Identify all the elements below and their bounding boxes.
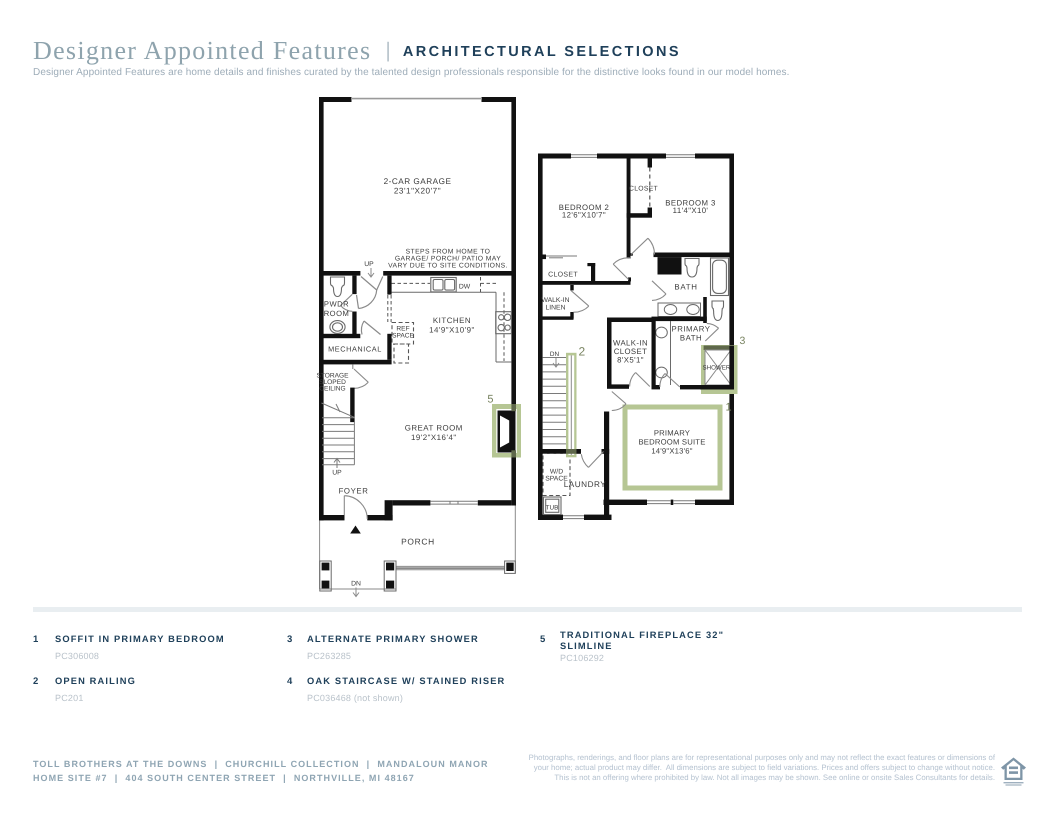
svg-text:CLOSET: CLOSET	[548, 272, 578, 279]
svg-text:19'2"X16'4": 19'2"X16'4"	[411, 433, 457, 442]
svg-text:BATH: BATH	[674, 283, 697, 292]
svg-text:PWDR: PWDR	[324, 300, 349, 309]
svg-text:DW: DW	[459, 283, 471, 290]
svg-text:23'1"X20'7": 23'1"X20'7"	[394, 187, 441, 196]
svg-text:BATH: BATH	[680, 334, 702, 343]
svg-text:14'9"X10'9": 14'9"X10'9"	[429, 326, 475, 335]
svg-text:FOYER: FOYER	[339, 487, 369, 496]
svg-text:BEDROOM SUITE: BEDROOM SUITE	[638, 438, 705, 447]
svg-text:SPACE: SPACE	[392, 333, 414, 340]
svg-text:SHOWER: SHOWER	[702, 365, 730, 372]
svg-text:REF: REF	[396, 326, 409, 333]
svg-text:STEPS FROM HOME TO: STEPS FROM HOME TO	[406, 249, 491, 256]
svg-text:DN: DN	[550, 351, 560, 358]
svg-text:GREAT ROOM: GREAT ROOM	[405, 423, 463, 432]
svg-text:2-CAR GARAGE: 2-CAR GARAGE	[384, 177, 452, 186]
svg-text:12'6"X10'7": 12'6"X10'7"	[562, 210, 606, 219]
svg-text:ROOM: ROOM	[324, 309, 350, 318]
svg-text:LINEN: LINEN	[545, 305, 565, 312]
svg-text:1: 1	[726, 402, 732, 414]
svg-text:8'X5'1": 8'X5'1"	[617, 356, 644, 365]
svg-text:PORCH: PORCH	[401, 537, 435, 547]
svg-text:UP: UP	[364, 261, 374, 268]
svg-text:TUB: TUB	[546, 505, 559, 512]
svg-text:LAUNDRY: LAUNDRY	[564, 480, 607, 489]
svg-text:14'9"X13'6": 14'9"X13'6"	[651, 447, 692, 456]
svg-text:DN: DN	[351, 581, 361, 588]
svg-text:CLOSET: CLOSET	[629, 186, 658, 193]
svg-text:5: 5	[487, 393, 493, 405]
svg-text:KITCHEN: KITCHEN	[433, 316, 471, 325]
svg-text:WALK-IN: WALK-IN	[541, 297, 569, 304]
svg-text:PRIMARY: PRIMARY	[672, 325, 711, 334]
svg-text:PRIMARY: PRIMARY	[654, 429, 690, 438]
svg-text:VARY DUE TO SITE CONDITIONS.: VARY DUE TO SITE CONDITIONS.	[388, 263, 508, 270]
svg-text:2: 2	[579, 345, 586, 359]
svg-text:GARAGE/ PORCH/ PATIO MAY: GARAGE/ PORCH/ PATIO MAY	[395, 256, 501, 263]
svg-text:3: 3	[740, 335, 746, 347]
svg-text:UP: UP	[332, 470, 342, 477]
svg-text:MECHANICAL: MECHANICAL	[328, 345, 382, 354]
svg-text:11'4"X10': 11'4"X10'	[673, 206, 709, 215]
svg-text:CEILING: CEILING	[319, 386, 345, 393]
